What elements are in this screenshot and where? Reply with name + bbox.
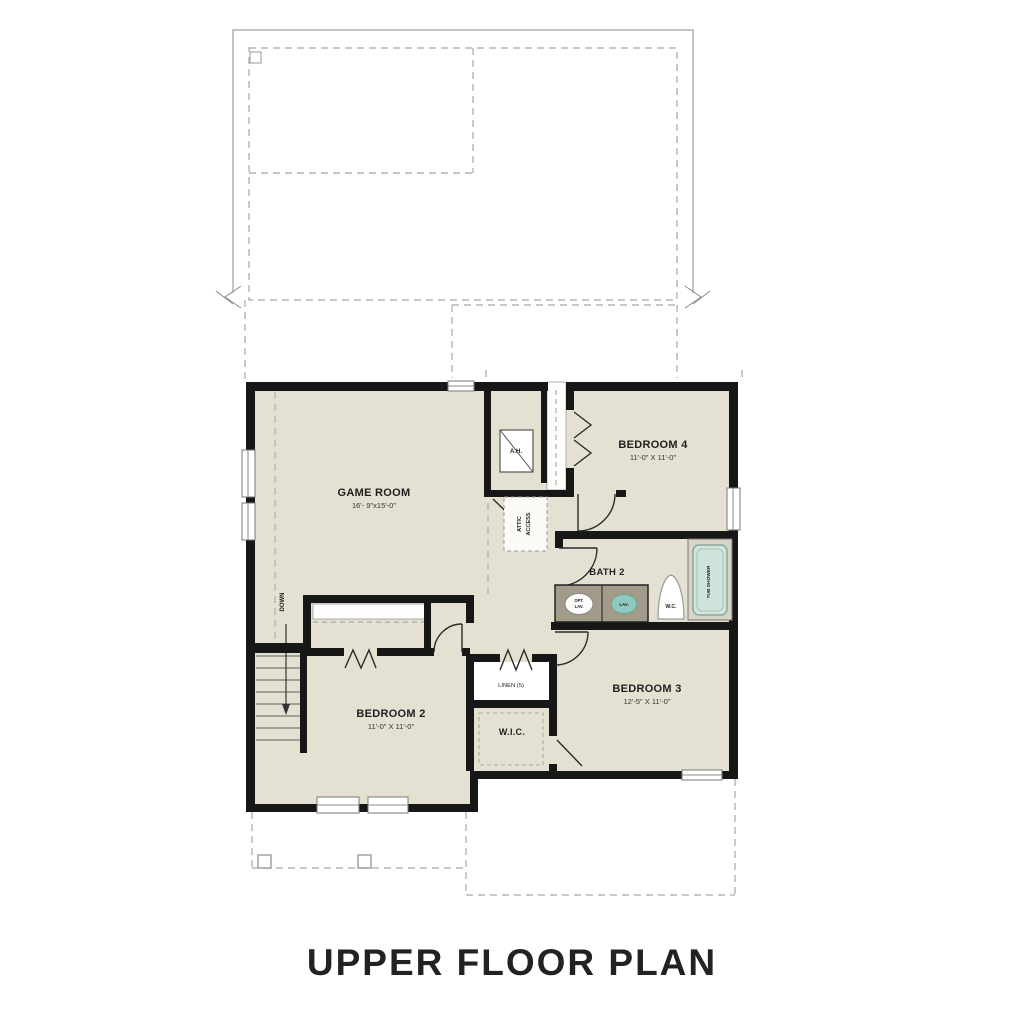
bedroom2-label: BEDROOM 2 [356,708,425,720]
linen-closet-floor [474,662,549,700]
window [682,770,722,780]
linen-label: LINEN (5) [498,683,524,689]
wc-label: W.C. [665,604,677,610]
roof-outline-below [216,30,742,381]
page-title: UPPER FLOOR PLAN [0,942,1024,984]
window [727,488,740,530]
down-label: DOWN [280,593,286,612]
bedroom4-dims: 11'-0" X 11'-0" [630,453,677,462]
bedroom4-label: BEDROOM 4 [618,439,688,451]
ah-label: A.H. [510,449,522,455]
attic-access-label: ATTIC [517,516,523,532]
bedroom3-dims: 12'-5" X 11'-0" [624,697,671,706]
bedroom2-dims: 11'-0" X 11'-0" [368,722,415,731]
window [368,797,408,813]
tub-shower: TUB SHOWER [688,539,732,620]
bath2-label: BATH 2 [589,567,624,578]
attic-access-label: ACCESS [526,512,532,535]
tub-shower-label: TUB SHOWER [706,565,712,598]
attic-access: ATTIC ACCESS [504,497,547,551]
air-handler: A.H. [500,430,533,472]
floor-plan-drawing: A.H. ATTIC ACCESS OPT. LAV. LAV. W.C. TU… [0,0,1024,1023]
opt-lav-label: LAV. [575,604,584,609]
window [242,503,255,540]
porch-post [358,855,371,868]
window [448,381,474,391]
roof-detail-square [250,52,261,63]
bedroom4-closet [547,382,566,490]
game-room-label: GAME ROOM [338,487,411,499]
floor-plan-page: A.H. ATTIC ACCESS OPT. LAV. LAV. W.C. TU… [0,0,1024,1023]
lav-label: LAV. [619,602,628,607]
vanity: OPT. LAV. LAV. [555,585,648,622]
opt-lav-label: OPT. [574,598,583,603]
window [242,450,255,497]
game-room-dims: 16'- 9"x15'-0" [352,501,396,510]
window [317,797,359,813]
bedroom2-closet-shelf [313,604,426,622]
wic-label: W.I.C. [499,727,525,737]
porch-post [258,855,271,868]
bedroom3-label: BEDROOM 3 [612,683,681,695]
